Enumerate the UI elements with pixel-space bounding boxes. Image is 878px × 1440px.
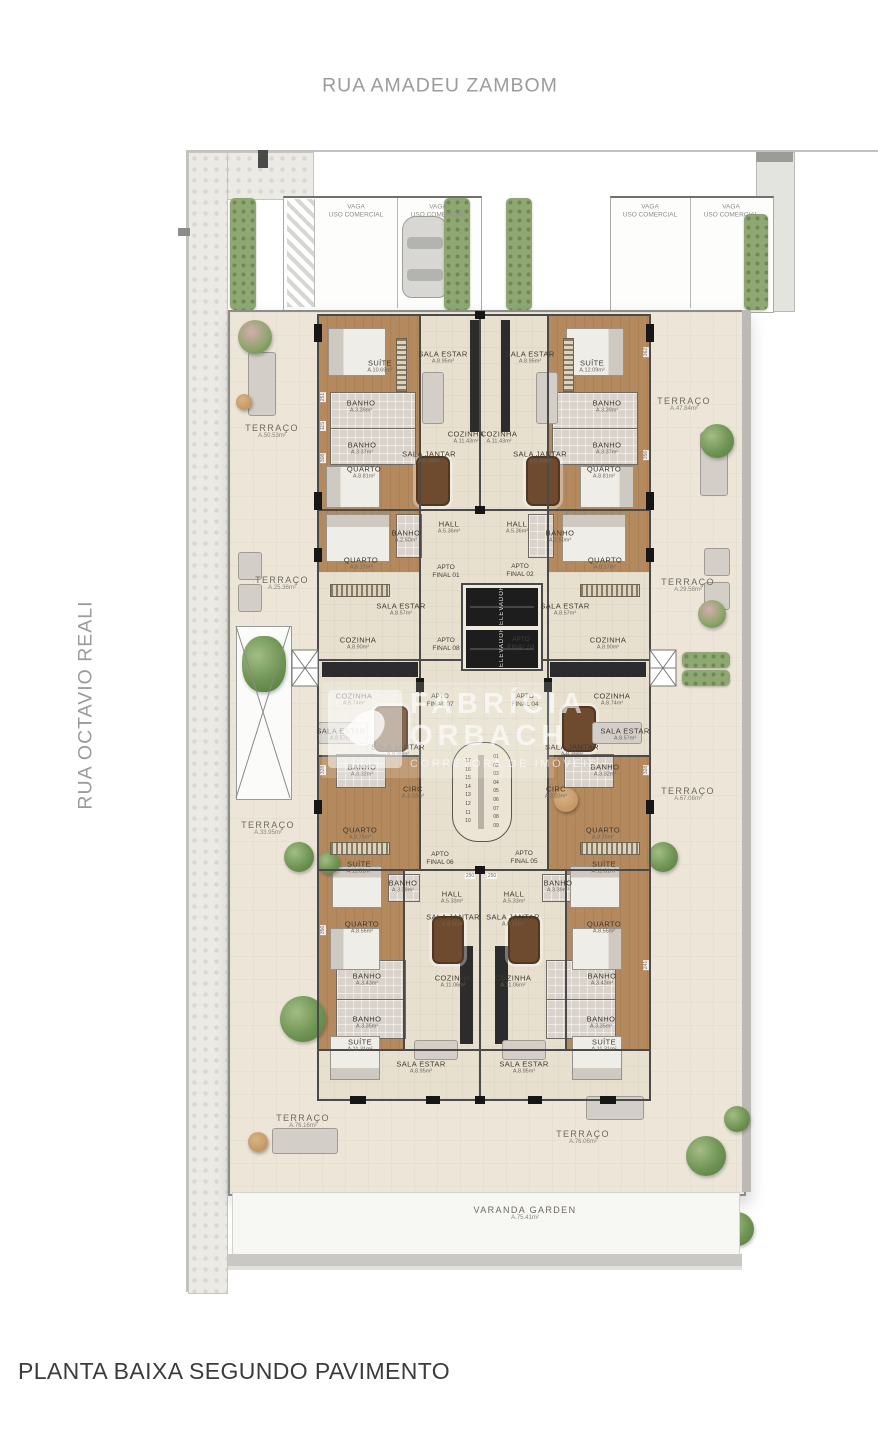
stair-step-number: 09	[489, 822, 503, 831]
room-name: BANHO	[593, 399, 622, 408]
room-label: COZINHA A.11.43m²	[481, 430, 518, 445]
hedge	[682, 652, 730, 668]
room-area: A.8.90m²	[340, 645, 377, 651]
room-label: COZINHA A.11.06m²	[435, 974, 472, 989]
car-rear-window	[407, 269, 443, 281]
street-fixture	[258, 150, 268, 168]
room-label: BANHO A.3.37m²	[593, 441, 622, 456]
kitchen-counter	[495, 946, 508, 1044]
room-name: BANHO	[587, 1015, 616, 1024]
room-area: A.11.43m²	[481, 439, 518, 445]
room-label: BANHO A.2.50m²	[392, 529, 421, 544]
room-label: SUÍTE A.11.31m²	[347, 860, 372, 875]
apto-line2: FINAL 06	[426, 859, 453, 867]
room-area: A.3.39m²	[544, 888, 573, 894]
floor-plan-canvas: RUA AMADEU ZAMBOM RUA OCTAVIO REALI	[0, 0, 878, 1440]
room-label: BANHO A.3.39m²	[544, 879, 573, 894]
bottom-curb	[228, 1254, 742, 1266]
room-label: SALA JANTAR A.8.39m²	[513, 450, 567, 465]
room-name: BANHO	[353, 972, 382, 981]
terrace-sofa	[586, 1096, 644, 1120]
apto-line1: APTO	[506, 563, 533, 571]
kitchen-counter	[550, 662, 646, 677]
terrace-chair	[704, 548, 730, 576]
room-area: A.8.75m²	[586, 835, 620, 841]
elevator-label: ELEVADOR	[499, 589, 505, 625]
room-label: COZINHA A.8.90m²	[590, 636, 627, 651]
room-name: QUARTO	[587, 920, 621, 929]
room-area: A.11.06m²	[495, 983, 532, 989]
sofa	[536, 372, 558, 424]
room-name: SALA ESTAR	[376, 602, 425, 611]
terrace-label: TERRAÇO A.33.95m²	[241, 820, 295, 836]
terrace-area: A.29.58m²	[661, 587, 715, 593]
apto-line1: APTO	[432, 564, 459, 572]
plant	[648, 842, 678, 872]
apto-line2: FINAL 03	[507, 644, 534, 652]
room-label: COZINHA A.11.06m²	[495, 974, 532, 989]
room-area: A.5.36m²	[506, 529, 528, 535]
terrace-area: A.47.84m²	[657, 406, 711, 412]
room-name: SALA ESTAR	[396, 1060, 445, 1069]
room-area: A.8.39m²	[513, 459, 567, 465]
hedge	[230, 198, 256, 310]
terrace-label: TERRAÇO A.29.58m²	[661, 577, 715, 593]
room-name: SALA JANTAR	[402, 450, 456, 459]
room-area: A.3.35m²	[587, 1024, 616, 1030]
room-name: BANHO	[392, 529, 421, 538]
room-label: SALA JANTAR A.8.16m²	[426, 913, 480, 928]
apartment-label: APTO FINAL 02	[506, 563, 533, 579]
stair-step-number: 10	[461, 817, 475, 826]
room-name: COZINHA	[495, 974, 532, 983]
vaga-line1: VAGA	[623, 204, 678, 212]
apto-line2: FINAL 08	[432, 645, 459, 653]
room-name: HALL	[506, 520, 528, 529]
apto-line1: APTO	[432, 637, 459, 645]
room-name: BANHO	[593, 441, 622, 450]
room-area: A.3.43m²	[588, 981, 617, 987]
parking-stall-label: VAGA USO COMERCIAL	[623, 204, 678, 221]
room-name: SALA JANTAR	[513, 450, 567, 459]
room-area: A.2.50m²	[392, 538, 421, 544]
stair-step-number: 12	[461, 800, 475, 809]
car-windshield	[407, 237, 443, 249]
dimension-tag: 308	[320, 453, 326, 463]
door-mat	[396, 338, 407, 392]
terrace-label: TERRAÇO A.76.06m²	[556, 1129, 610, 1145]
side-table	[248, 1132, 268, 1152]
room-area: A.3.03m²	[545, 794, 567, 800]
room-name: BANHO	[546, 529, 575, 538]
sofa	[422, 372, 444, 424]
dimension-tag: 362	[643, 347, 649, 357]
room-area: A.8.81m²	[347, 474, 381, 480]
room-name: CIRC	[402, 785, 424, 794]
varanda-area: A.75.41m²	[474, 1215, 577, 1221]
stair-step-number: 11	[461, 809, 475, 818]
sidewalk-left-strip	[188, 152, 228, 1294]
dimension-tag: 328	[643, 765, 649, 775]
room-name: SALA JANTAR	[426, 913, 480, 922]
room-label: QUARTO A.8.56m²	[345, 920, 379, 935]
apartment-label: APTO FINAL 01	[432, 564, 459, 580]
room-label: COZINHA A.8.90m²	[340, 636, 377, 651]
room-name: SALA ESTAR	[505, 350, 554, 359]
room-label: QUARTO A.8.81m²	[347, 465, 381, 480]
stair-step-number: 08	[489, 813, 503, 822]
street-label-left: RUA OCTAVIO REALI	[75, 600, 98, 809]
apto-line2: FINAL 05	[510, 858, 537, 866]
terrace-name: TERRAÇO	[241, 820, 295, 830]
room-label: SALA JANTAR A.8.16m²	[486, 913, 540, 928]
drop-icon	[342, 703, 391, 752]
room-label: QUARTO A.8.17m²	[344, 556, 378, 571]
room-area: A.8.75m²	[343, 835, 377, 841]
watermark-tagline: CORRETORA DE IMÓVEIS	[410, 758, 599, 770]
room-area: A.8.16m²	[486, 922, 540, 928]
door-mat	[580, 842, 640, 855]
tree	[242, 636, 286, 692]
terrace-name: TERRAÇO	[276, 1113, 330, 1123]
room-name: SUÍTE	[592, 1038, 617, 1047]
vaga-line2: USO COMERCIAL	[623, 212, 678, 220]
street-label-top: RUA AMADEU ZAMBOM	[322, 75, 558, 98]
sofa	[502, 1040, 546, 1060]
stall-divider	[690, 198, 691, 308]
room-area: A.3.43m²	[353, 981, 382, 987]
room-area: A.5.33m²	[441, 899, 463, 905]
stair-step-number: 07	[489, 805, 503, 814]
room-label: BANHO A.3.39m²	[389, 879, 418, 894]
room-area: A.8.56m²	[345, 929, 379, 935]
room-area: A.3.03m²	[402, 794, 424, 800]
room-area: A.11.31m²	[348, 1047, 373, 1053]
terrace-name: TERRAÇO	[556, 1129, 610, 1139]
room-name: QUARTO	[343, 826, 377, 835]
stall-divider	[397, 198, 398, 308]
side-table	[236, 394, 252, 410]
room-label: BANHO A.3.43m²	[353, 972, 382, 987]
room-name: SALA ESTAR	[600, 727, 649, 736]
room-name: SALA JANTAR	[486, 913, 540, 922]
stair-step-number: 04	[489, 779, 503, 788]
kitchen-counter	[322, 662, 418, 677]
vaga-line2: USO COMERCIAL	[704, 212, 759, 220]
stair-step-number: 05	[489, 787, 503, 796]
hedge	[506, 198, 532, 310]
terrace-sofa	[272, 1128, 338, 1154]
terrace-label: TERRAÇO A.76.16m²	[276, 1113, 330, 1129]
room-area: A.8.57m²	[540, 611, 589, 617]
dimension-tag: 356	[643, 450, 649, 460]
room-area: A.3.39m²	[593, 408, 622, 414]
room-name: BANHO	[544, 879, 573, 888]
apartment-label: APTO FINAL 08	[432, 637, 459, 653]
watermark-logo	[328, 690, 402, 768]
room-name: COZINHA	[340, 636, 377, 645]
room-name: COZINHA	[448, 430, 485, 439]
room-name: COZINHA	[594, 692, 631, 701]
room-label: BANHO A.3.37m²	[348, 441, 377, 456]
room-name: COZINHA	[435, 974, 472, 983]
room-area: A.3.39m²	[347, 408, 376, 414]
room-name: HALL	[441, 890, 463, 899]
parking-stall-label: VAGA USO COMERCIAL	[704, 204, 759, 221]
room-area: A.3.39m²	[389, 888, 418, 894]
room-label: SALA ESTAR A.8.57m²	[376, 602, 425, 617]
room-area: A.8.95m²	[396, 1069, 445, 1075]
room-area: A.8.90m²	[590, 645, 627, 651]
room-name: COZINHA	[590, 636, 627, 645]
watermark-text: FABRÍCIA ORBACH CORRETORA DE IMÓVEIS	[410, 688, 599, 770]
terrace-area: A.76.06m²	[556, 1139, 610, 1145]
terrace-label: TERRAÇO A.67.08m²	[661, 786, 715, 802]
dimension-tag: 241	[643, 960, 649, 970]
room-label: BANHO A.3.35m²	[353, 1015, 382, 1030]
room-label: SALA ESTAR A.8.57m²	[540, 602, 589, 617]
room-label: SUÍTE A.11.31m²	[348, 1038, 373, 1053]
dimension-tag: 250	[465, 873, 475, 879]
apto-line1: APTO	[507, 636, 534, 644]
terrace-name: TERRAÇO	[657, 396, 711, 406]
apartment-label: APTO FINAL 03	[507, 636, 534, 652]
room-label: SUÍTE A.12.09m²	[579, 359, 604, 374]
room-label: BANHO A.3.39m²	[347, 399, 376, 414]
parking-stall-label: VAGA USO COMERCIAL	[329, 204, 384, 221]
terrace-label: TERRAÇO A.25.36m²	[255, 575, 309, 591]
hedge	[744, 214, 768, 310]
room-area: A.5.33m²	[503, 899, 525, 905]
door-mat	[563, 338, 574, 392]
room-label: SALA ESTAR A.8.95m²	[396, 1060, 445, 1075]
room-label: BANHO A.3.43m²	[588, 972, 617, 987]
room-label: QUARTO A.8.17m²	[588, 556, 622, 571]
room-name: QUARTO	[588, 556, 622, 565]
vaga-line2: USO COMERCIAL	[329, 212, 384, 220]
room-name: BANHO	[347, 399, 376, 408]
plant	[700, 424, 734, 458]
room-area: A.8.56m²	[587, 929, 621, 935]
room-label: SALA ESTAR A.8.95m²	[505, 350, 554, 365]
room-label: BANHO A.3.35m²	[587, 1015, 616, 1030]
room-label: QUARTO A.8.75m²	[586, 826, 620, 841]
dimension-tag: 250	[487, 873, 497, 879]
terrace-name: TERRAÇO	[661, 786, 715, 796]
room-area: A.11.31m²	[592, 1047, 617, 1053]
plant	[724, 1106, 750, 1132]
room-label: QUARTO A.8.81m²	[587, 465, 621, 480]
room-area: A.8.95m²	[418, 359, 467, 365]
plant	[686, 1136, 726, 1176]
page-title: PLANTA BAIXA SEGUNDO PAVIMENTO	[18, 1358, 450, 1385]
room-area: A.8.95m²	[499, 1069, 548, 1075]
room-name: SUÍTE	[592, 860, 617, 869]
room-area: A.8.57m²	[376, 611, 425, 617]
room-label: HALL A.5.36m²	[506, 520, 528, 535]
elevator-label: ELEVADOR	[499, 631, 505, 667]
room-name: CIRC	[545, 785, 567, 794]
street-fixture	[178, 228, 190, 236]
room-name: BANHO	[348, 441, 377, 450]
room-area: A.11.43m²	[448, 439, 485, 445]
room-area: A.11.31m²	[347, 869, 372, 875]
room-name: QUARTO	[586, 826, 620, 835]
room-name: QUARTO	[344, 556, 378, 565]
watermark-brand-line2: ORBACH	[410, 720, 599, 752]
room-label: SUÍTE A.11.31m²	[592, 860, 617, 875]
parking-stall-label: VAGA USO COMERCIAL	[411, 204, 466, 221]
building-right-edge	[742, 310, 751, 1192]
room-name: COZINHA	[481, 430, 518, 439]
watermark-brand-line1: FABRÍCIA	[410, 688, 599, 720]
varanda-name: VARANDA GARDEN	[474, 1205, 577, 1215]
plant	[698, 600, 726, 628]
room-area: A.10.69m²	[367, 368, 392, 374]
room-area: A.3.37m²	[593, 450, 622, 456]
room-name: SUÍTE	[348, 1038, 373, 1047]
room-label: CIRC A.3.03m²	[402, 785, 424, 800]
no-parking-hatch	[287, 199, 315, 307]
hedge	[682, 670, 730, 686]
room-area: A.2.50m²	[546, 538, 575, 544]
apartment-label: APTO FINAL 05	[510, 850, 537, 866]
stair-step-number: 14	[461, 783, 475, 792]
dimension-tag: 115	[320, 421, 326, 431]
terrace-area: A.76.16m²	[276, 1123, 330, 1129]
door-mat	[330, 842, 390, 855]
room-label: SUÍTE A.10.69m²	[367, 359, 392, 374]
room-label: BANHO A.2.50m²	[546, 529, 575, 544]
room-area: A.8.57m²	[600, 736, 649, 742]
dimension-tag: 356	[320, 925, 326, 935]
bottom-curb-light	[228, 1266, 742, 1270]
room-label: SALA ESTAR A.8.57m²	[600, 727, 649, 742]
apto-line1: APTO	[510, 850, 537, 858]
apto-line1: APTO	[426, 851, 453, 859]
room-name: SALA ESTAR	[499, 1060, 548, 1069]
terrace-label: TERRAÇO A.50.53m²	[245, 423, 299, 439]
terrace-name: TERRAÇO	[245, 423, 299, 433]
terrace-area: A.67.08m²	[661, 796, 715, 802]
room-name: BANHO	[389, 879, 418, 888]
room-name: SUÍTE	[347, 860, 372, 869]
room-area: A.8.17m²	[588, 565, 622, 571]
room-label: HALL A.5.33m²	[441, 890, 463, 905]
kitchen-counter	[501, 320, 510, 432]
room-label: QUARTO A.8.56m²	[587, 920, 621, 935]
room-name: SALA ESTAR	[540, 602, 589, 611]
stair-step-number: 06	[489, 796, 503, 805]
room-name: QUARTO	[587, 465, 621, 474]
door-mat	[580, 584, 640, 597]
room-area: A.8.16m²	[426, 922, 480, 928]
room-area: A.8.95m²	[505, 359, 554, 365]
terrace-area: A.25.36m²	[255, 585, 309, 591]
room-label: SALA ESTAR A.8.95m²	[499, 1060, 548, 1075]
terrace-name: TERRAÇO	[661, 577, 715, 587]
room-area: A.3.37m²	[348, 450, 377, 456]
room-name: SUÍTE	[579, 359, 604, 368]
plant	[280, 996, 326, 1042]
room-name: QUARTO	[347, 465, 381, 474]
room-name: HALL	[438, 520, 460, 529]
room-label: CIRC A.3.03m²	[545, 785, 567, 800]
apto-line2: FINAL 01	[432, 572, 459, 580]
room-name: QUARTO	[345, 920, 379, 929]
vaga-line2: USO COMERCIAL	[411, 212, 466, 220]
room-area: A.12.09m²	[579, 368, 604, 374]
vaga-line1: VAGA	[704, 204, 759, 212]
room-area: A.3.32m²	[591, 772, 620, 778]
stair-step-number: 13	[461, 791, 475, 800]
curb-left	[186, 150, 188, 1292]
room-label: HALL A.5.33m²	[503, 890, 525, 905]
room-label: SALA ESTAR A.8.95m²	[418, 350, 467, 365]
apto-line2: FINAL 02	[506, 571, 533, 579]
room-name: BANHO	[588, 972, 617, 981]
room-label: HALL A.5.36m²	[438, 520, 460, 535]
room-area: A.8.81m²	[587, 474, 621, 480]
room-area: A.11.31m²	[592, 869, 617, 875]
car-top-view	[402, 216, 448, 298]
sofa	[414, 1040, 458, 1060]
room-name: SUÍTE	[367, 359, 392, 368]
room-area: A.8.17m²	[344, 565, 378, 571]
room-label: SUÍTE A.11.31m²	[592, 1038, 617, 1053]
vaga-line1: VAGA	[411, 204, 466, 212]
terrace-area: A.50.53m²	[245, 433, 299, 439]
room-name: HALL	[503, 890, 525, 899]
room-area: A.5.36m²	[438, 529, 460, 535]
terrace-sofa	[248, 352, 276, 416]
ramp-cap	[756, 152, 793, 162]
varanda-garden-strip	[232, 1192, 740, 1256]
plant	[238, 320, 272, 354]
varanda-label: VARANDA GARDEN A.75.41m²	[474, 1205, 577, 1221]
room-label: QUARTO A.8.75m²	[343, 826, 377, 841]
kitchen-counter	[470, 320, 479, 432]
room-label: BANHO A.3.39m²	[593, 399, 622, 414]
apartment-label: APTO FINAL 06	[426, 851, 453, 867]
plant	[284, 842, 314, 872]
room-name: BANHO	[353, 1015, 382, 1024]
room-label: COZINHA A.11.43m²	[448, 430, 485, 445]
room-area: A.11.06m²	[435, 983, 472, 989]
vaga-line1: VAGA	[329, 204, 384, 212]
room-label: SALA JANTAR A.8.39m²	[402, 450, 456, 465]
dimension-tag: 251	[320, 392, 326, 402]
room-label: COZINHA A.8.74m²	[594, 692, 631, 707]
room-name: SALA ESTAR	[418, 350, 467, 359]
plant	[318, 852, 340, 874]
room-area: A.8.39m²	[402, 459, 456, 465]
terrace-area: A.33.95m²	[241, 830, 295, 836]
terrace-name: TERRAÇO	[255, 575, 309, 585]
room-area: A.8.74m²	[594, 701, 631, 707]
terrace-label: TERRAÇO A.47.84m²	[657, 396, 711, 412]
door-mat	[330, 584, 390, 597]
room-area: A.3.35m²	[353, 1024, 382, 1030]
